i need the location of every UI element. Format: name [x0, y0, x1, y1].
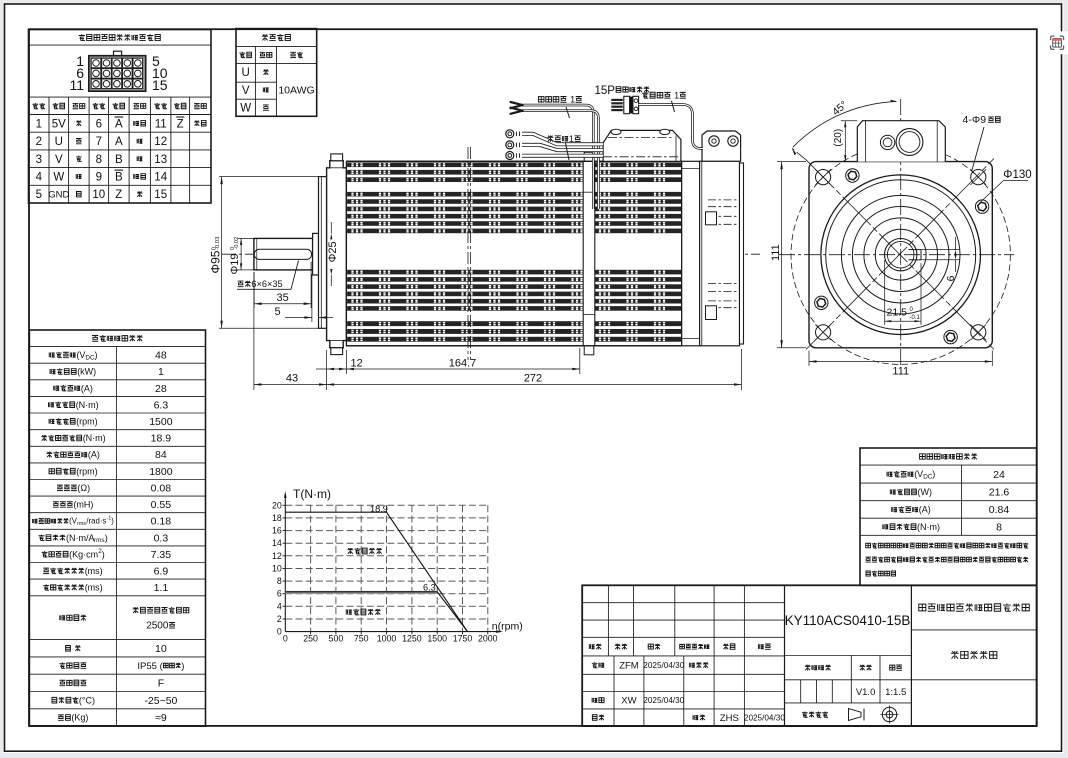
- svg-text:(A): (A): [88, 450, 100, 460]
- svg-text:500: 500: [329, 634, 344, 644]
- svg-text:18: 18: [272, 513, 282, 523]
- svg-text:KY110ACS0410-15B: KY110ACS0410-15B: [785, 613, 911, 628]
- svg-text:111: 111: [770, 244, 782, 261]
- svg-text:4: 4: [36, 172, 43, 184]
- svg-text:0.3: 0.3: [154, 532, 169, 544]
- svg-text:DC: DC: [85, 354, 95, 361]
- svg-text:11: 11: [155, 118, 167, 130]
- svg-text:6.3: 6.3: [423, 583, 436, 593]
- svg-text:(rpm): (rpm): [76, 466, 98, 476]
- svg-text:5: 5: [274, 306, 280, 318]
- svg-text:21.5: 21.5: [887, 307, 908, 319]
- svg-text:V: V: [55, 154, 63, 166]
- svg-text:0.55: 0.55: [151, 499, 172, 511]
- svg-text:21.6: 21.6: [989, 487, 1010, 499]
- svg-text:T(N·m): T(N·m): [293, 487, 331, 501]
- svg-text:-25~50: -25~50: [144, 695, 177, 707]
- svg-text:272: 272: [524, 373, 542, 385]
- svg-text:14: 14: [154, 172, 167, 184]
- svg-text:A: A: [115, 118, 123, 130]
- svg-text:7: 7: [96, 136, 102, 148]
- svg-text:6.3: 6.3: [154, 399, 169, 411]
- svg-text:1750: 1750: [453, 634, 473, 644]
- svg-text:≈9: ≈9: [155, 712, 167, 724]
- svg-text:6.9: 6.9: [154, 566, 169, 578]
- svg-text:6: 6: [96, 118, 102, 130]
- svg-text:(W): (W): [918, 487, 933, 497]
- svg-text:): ): [932, 469, 935, 479]
- svg-text:U: U: [55, 136, 63, 148]
- svg-text:11: 11: [69, 77, 84, 93]
- svg-text:XW: XW: [621, 696, 636, 707]
- svg-text:12: 12: [351, 357, 363, 369]
- svg-text:3: 3: [36, 154, 42, 166]
- svg-text:-0.02: -0.02: [234, 237, 240, 250]
- svg-text:15: 15: [154, 189, 167, 201]
- svg-text:Φ25: Φ25: [327, 241, 339, 262]
- svg-text:0.84: 0.84: [989, 504, 1010, 516]
- svg-text:0: 0: [277, 627, 282, 637]
- svg-text:-0.1: -0.1: [910, 315, 921, 321]
- svg-text:-0.03: -0.03: [215, 237, 221, 250]
- svg-text:(N·m/A: (N·m/A: [66, 533, 95, 543]
- svg-text:14: 14: [272, 538, 282, 548]
- svg-text:1500: 1500: [149, 416, 173, 428]
- svg-text:2: 2: [36, 136, 42, 148]
- svg-text:/rad·s: /rad·s: [86, 517, 106, 526]
- svg-text:12: 12: [154, 136, 167, 148]
- svg-text:6: 6: [945, 275, 957, 281]
- svg-text:1800: 1800: [149, 466, 173, 478]
- svg-text:GND: GND: [48, 190, 69, 201]
- svg-text:9: 9: [96, 172, 102, 184]
- svg-text:250: 250: [303, 634, 318, 644]
- svg-text:(Ω): (Ω): [77, 483, 90, 493]
- svg-text:(A): (A): [81, 383, 93, 393]
- svg-text:(V: (V: [914, 469, 923, 479]
- svg-text:B: B: [115, 172, 123, 184]
- svg-text:18.9: 18.9: [370, 504, 388, 514]
- svg-text:(ms): (ms): [85, 583, 103, 593]
- svg-text:1: 1: [570, 95, 575, 105]
- svg-text:): ): [105, 533, 108, 543]
- svg-text:4: 4: [277, 601, 282, 611]
- svg-text:2: 2: [277, 614, 282, 624]
- svg-text:Z: Z: [177, 118, 184, 130]
- svg-text:(N·m): (N·m): [76, 400, 99, 410]
- svg-text:43: 43: [286, 373, 298, 385]
- svg-text:18.9: 18.9: [151, 433, 172, 445]
- svg-text:W: W: [240, 103, 251, 115]
- svg-text:Φ95: Φ95: [208, 250, 222, 273]
- svg-text:8: 8: [96, 154, 102, 166]
- svg-text:2000: 2000: [478, 634, 498, 644]
- svg-text:Z: Z: [115, 189, 122, 201]
- svg-text:V1.0: V1.0: [856, 687, 876, 698]
- svg-text:Φ19: Φ19: [229, 253, 241, 274]
- svg-text:(20): (20): [833, 129, 844, 147]
- svg-text:(kW): (kW): [77, 367, 96, 377]
- svg-text:1.1: 1.1: [154, 582, 169, 594]
- svg-text:2025/04/30: 2025/04/30: [643, 661, 684, 670]
- svg-text:(mH): (mH): [73, 500, 93, 510]
- svg-text:(Kg): (Kg): [71, 713, 88, 723]
- svg-text:84: 84: [155, 449, 167, 461]
- svg-text:0.08: 0.08: [151, 483, 172, 495]
- svg-text:n(rpm): n(rpm): [492, 621, 523, 633]
- svg-text:1: 1: [158, 366, 164, 378]
- svg-text:IP55 (: IP55 (: [137, 661, 163, 672]
- svg-text:8: 8: [277, 576, 282, 586]
- svg-text:28: 28: [155, 383, 167, 395]
- svg-text:V: V: [242, 85, 250, 97]
- svg-text:): ): [111, 517, 114, 526]
- svg-text:15P: 15P: [595, 85, 616, 97]
- svg-text:4-Φ9: 4-Φ9: [963, 114, 987, 126]
- svg-text:A: A: [115, 136, 123, 148]
- svg-text:5V: 5V: [52, 118, 66, 130]
- svg-text:): ): [102, 549, 105, 559]
- svg-text:1000: 1000: [377, 634, 397, 644]
- svg-text:1500: 1500: [427, 634, 447, 644]
- svg-text:6: 6: [277, 589, 282, 599]
- svg-text:(rpm): (rpm): [76, 417, 98, 427]
- svg-text:24: 24: [993, 469, 1005, 481]
- svg-text:ZFM: ZFM: [619, 660, 639, 671]
- svg-text:(A): (A): [919, 505, 931, 515]
- svg-text:5: 5: [36, 189, 42, 201]
- svg-text:(ms): (ms): [85, 566, 103, 576]
- svg-text:10AWG: 10AWG: [278, 84, 314, 96]
- svg-text:): ): [181, 661, 184, 672]
- svg-text:F: F: [158, 678, 164, 690]
- svg-text:111: 111: [892, 365, 909, 377]
- svg-text:U: U: [242, 67, 250, 79]
- svg-text:16: 16: [272, 526, 282, 536]
- svg-text:rms: rms: [94, 537, 105, 544]
- svg-text:2025/04/30: 2025/04/30: [744, 713, 785, 722]
- svg-text:): ): [95, 350, 98, 360]
- svg-text:rms: rms: [77, 521, 86, 527]
- svg-text:12: 12: [272, 551, 282, 561]
- svg-text:0: 0: [283, 634, 288, 644]
- svg-text:(N·m): (N·m): [83, 433, 106, 443]
- svg-text:35: 35: [276, 292, 288, 304]
- svg-text:1: 1: [674, 90, 679, 100]
- svg-text:1: 1: [36, 118, 42, 130]
- svg-text:7.35: 7.35: [151, 549, 172, 561]
- svg-text:ZHS: ZHS: [720, 713, 739, 724]
- svg-text:48: 48: [155, 350, 167, 362]
- svg-text:13: 13: [154, 154, 167, 166]
- svg-text:1250: 1250: [402, 634, 422, 644]
- svg-text:(Kg·cm: (Kg·cm: [69, 549, 98, 559]
- svg-text:10: 10: [155, 643, 167, 655]
- svg-text:2025/04/30: 2025/04/30: [643, 696, 684, 705]
- svg-text:10: 10: [92, 189, 105, 201]
- svg-text:B: B: [115, 154, 123, 166]
- svg-text:20: 20: [272, 500, 282, 510]
- svg-text:8: 8: [996, 522, 1002, 534]
- svg-text:1: 1: [569, 134, 574, 144]
- svg-text:(V: (V: [76, 350, 85, 360]
- svg-text:6×6×35: 6×6×35: [251, 279, 282, 289]
- svg-text:(°C): (°C): [79, 695, 95, 705]
- svg-text:15: 15: [152, 77, 168, 93]
- svg-text:1:1.5: 1:1.5: [885, 687, 906, 698]
- svg-text:Φ130: Φ130: [1003, 169, 1031, 181]
- svg-text:2500: 2500: [146, 621, 169, 632]
- svg-text:(N·m): (N·m): [917, 522, 940, 532]
- svg-text:W: W: [53, 172, 64, 184]
- svg-text:750: 750: [354, 634, 369, 644]
- svg-text:164.7: 164.7: [449, 357, 477, 369]
- svg-text:0.18: 0.18: [151, 516, 172, 528]
- svg-text:10: 10: [272, 564, 282, 574]
